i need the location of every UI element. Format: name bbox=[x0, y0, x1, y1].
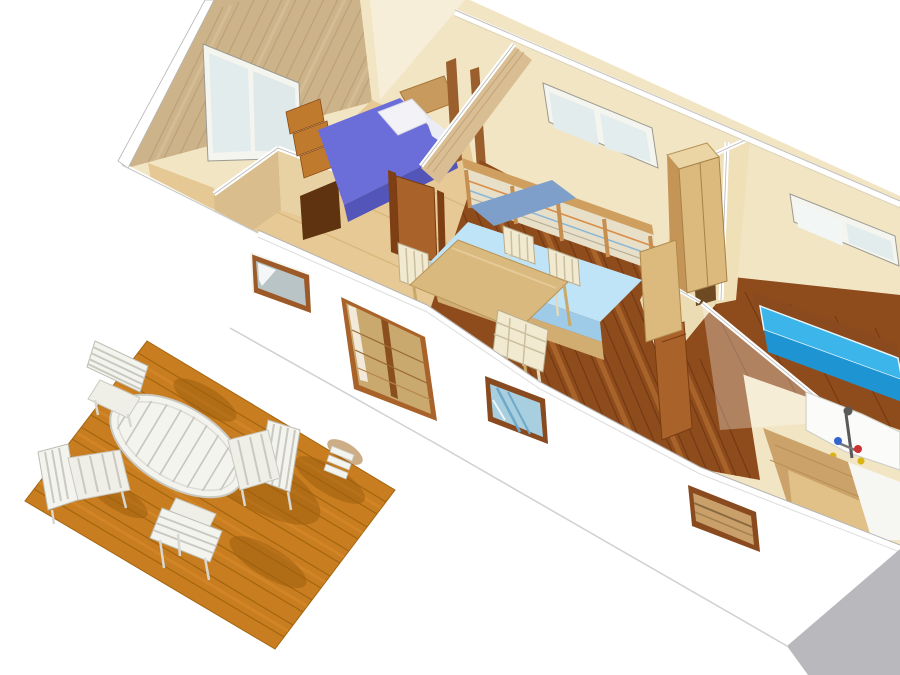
floorplan-3d-render bbox=[0, 0, 900, 675]
render-canvas bbox=[0, 0, 900, 675]
cold-knob bbox=[834, 437, 842, 445]
hot-knob bbox=[854, 445, 862, 453]
gable-window-pane-left bbox=[209, 53, 251, 153]
knob-yellow bbox=[858, 458, 865, 465]
cabinet-front bbox=[679, 157, 727, 293]
shower-head bbox=[844, 407, 853, 416]
sofa-end-board bbox=[640, 240, 682, 342]
